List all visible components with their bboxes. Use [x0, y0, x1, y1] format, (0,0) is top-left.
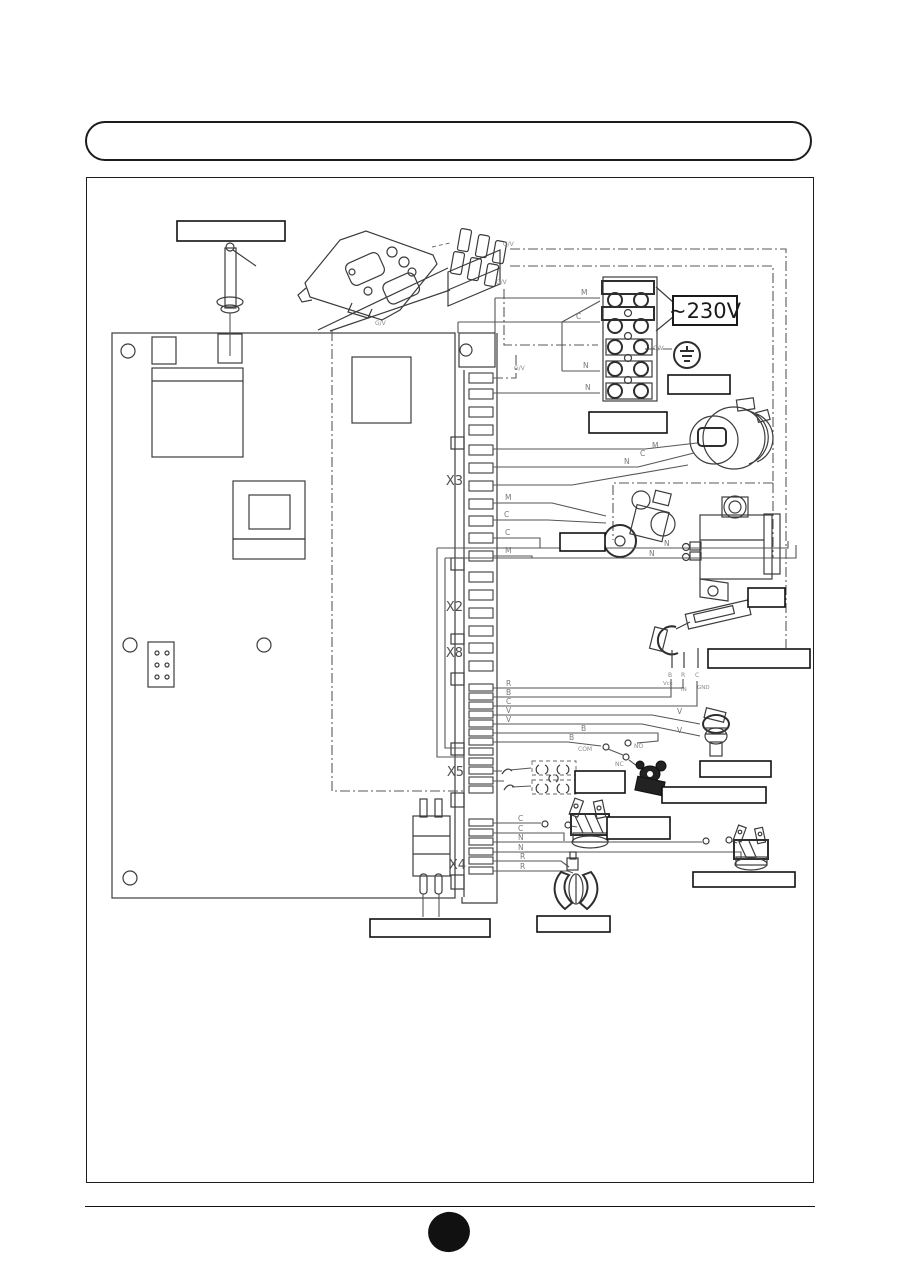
mains-voltage-callout: ~230V [669, 296, 742, 325]
wire-label-n: N [624, 457, 630, 466]
manual-page: X3 X2 X8 X5 X4 [0, 0, 900, 1273]
label-box-dhw-sensor [537, 916, 610, 932]
label-box-pump [560, 533, 605, 551]
sensor-terminal-b: B [668, 672, 672, 679]
label-box-room-thermostat [575, 771, 625, 793]
wire-label-c: C [518, 824, 523, 833]
earth-label-2: G/V [496, 279, 508, 286]
label-box-thermostat-1 [607, 817, 670, 839]
dash-dot-earth-lines [332, 249, 786, 791]
earth-faston-connectors [318, 228, 507, 331]
connector-label-x4: X4 [449, 858, 466, 873]
label-box-fan [589, 412, 667, 433]
sensor-terminal-r: R [681, 672, 685, 679]
ignition-electrode [217, 243, 256, 356]
label-box-microswitch [662, 787, 766, 803]
wire-label-r: R [506, 679, 511, 688]
wire-label-m: M [652, 441, 658, 450]
sensor-terminal-gnd: GND [697, 685, 710, 691]
connector-strip [451, 333, 497, 903]
wire-label-m: M [505, 546, 511, 555]
label-box-thermostat-2 [693, 872, 795, 887]
wire-label-m: M [581, 288, 587, 297]
label-box-pressure-sensor [708, 649, 810, 668]
ignition-transformer [413, 799, 450, 917]
connector-label-x5: X5 [447, 765, 464, 780]
wire-label-v: V [677, 707, 683, 716]
wire-label-r: R [520, 852, 525, 861]
earth-symbol-icon [674, 342, 700, 368]
label-box-ignition-electrode [177, 221, 285, 241]
wire-label-n: N [583, 361, 589, 370]
wire-label-c: C [505, 528, 510, 537]
sensor-wires [493, 679, 700, 746]
label-box-ignition-transformer [370, 919, 490, 937]
wire-label-c: C [640, 449, 645, 458]
wiring-diagram: X3 X2 X8 X5 X4 [0, 0, 900, 1273]
earth-label-1: G/V [503, 241, 515, 248]
wire-label-v: V [677, 726, 683, 735]
connector-label-x8: X8 [446, 646, 463, 661]
fan-wires [493, 443, 697, 485]
wire-label-n: N [664, 539, 670, 548]
wire-label-b: B [581, 724, 586, 733]
connector-label-x2: X2 [446, 600, 463, 615]
wire-label-n: N [518, 833, 524, 842]
sensor-terminal-c: C [695, 672, 699, 679]
pcb [112, 333, 455, 898]
wire-label-v: V [506, 706, 512, 715]
connector-label-x3: X3 [446, 474, 463, 489]
wire-label-v: V [506, 715, 512, 724]
contact-label-com: COM [578, 746, 592, 753]
safety-thermostat [569, 798, 609, 848]
label-box-ntc-sensor [700, 761, 771, 777]
wire-label-b: B [506, 688, 511, 697]
voltage-label: ~230V [669, 299, 742, 323]
wire-label-c: C [518, 814, 523, 823]
wire-label-c: C [506, 697, 511, 706]
connector-pins-thin [469, 684, 493, 874]
label-box-gas-valve [748, 588, 785, 607]
connector-pins-large [469, 373, 493, 671]
contact-label-no: NO [634, 743, 643, 750]
ntc-sensor [703, 708, 729, 756]
wire-label-r: R [520, 862, 525, 871]
wire-label-n: N [518, 843, 524, 852]
fan [690, 398, 773, 469]
room-thermostat-contacts [493, 761, 576, 794]
wire-label-n: N [649, 549, 655, 558]
wire-label-n: N [585, 383, 591, 392]
flue-thermostat [734, 825, 768, 870]
footer [0, 1200, 900, 1273]
contact-label-nc: NC [615, 761, 624, 768]
label-box-terminal [668, 375, 730, 394]
page-dot [424, 1208, 474, 1257]
wire-label-c: C [504, 510, 509, 519]
wire-label-c: C [576, 312, 581, 321]
wire-label-b: B [569, 733, 574, 742]
earth-label-3: G/V [375, 320, 387, 327]
pump-wires [493, 503, 606, 523]
wire-label-m: M [505, 493, 511, 502]
pcb-header-6pin [148, 642, 174, 687]
power-terminal-block [602, 277, 673, 401]
